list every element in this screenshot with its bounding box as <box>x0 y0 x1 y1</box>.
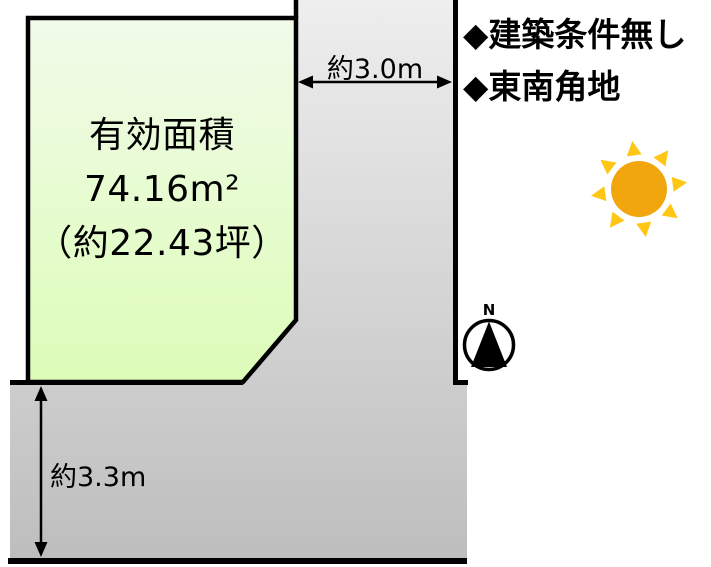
plot-area-size-m2: 74.16m² <box>28 163 296 217</box>
sun-ray <box>625 140 642 156</box>
sun-icon <box>590 140 688 238</box>
compass-icon: N <box>465 301 514 370</box>
note-building-conditions: ◆建築条件無し <box>463 9 686 61</box>
sun-ray <box>653 146 674 167</box>
site-plan-canvas: N 有効面積 74.16m² （約22.43坪） 約3.0m 約3.3m ◆建築… <box>0 0 711 567</box>
sun-ray <box>672 175 688 192</box>
sun-ray <box>596 154 617 175</box>
plot-area-title: 有効面積 <box>28 109 296 163</box>
road-width-label-east: 約3.0m <box>298 47 452 86</box>
sun-ray <box>590 186 606 203</box>
property-notes: ◆建築条件無し ◆東南角地 <box>463 9 686 113</box>
sun-ray <box>604 212 625 233</box>
note-corner-lot: ◆東南角地 <box>463 61 686 113</box>
sun-ray <box>662 203 683 224</box>
sun-ray <box>636 222 653 238</box>
plot-area-size-tsubo: （約22.43坪） <box>28 217 296 271</box>
compass-north-label: N <box>483 301 496 319</box>
sun-disc <box>611 161 667 217</box>
plot-area-label: 有効面積 74.16m² （約22.43坪） <box>28 109 296 271</box>
road-width-label-south: 約3.3m <box>50 455 146 494</box>
